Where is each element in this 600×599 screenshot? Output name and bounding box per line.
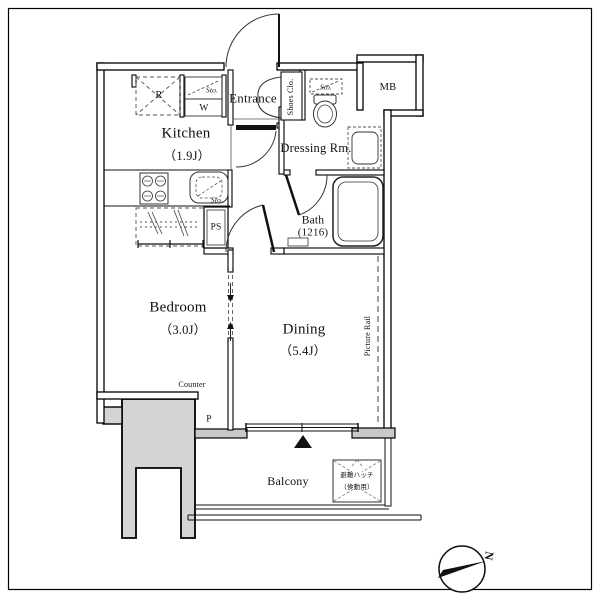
wall-bedroom-bottom [97, 392, 198, 399]
compass-north-label: N [482, 551, 495, 562]
bath-size: (1216) [298, 228, 329, 239]
dining-label: Dining [283, 323, 326, 338]
wall-r-w-divider [180, 75, 184, 117]
balcony-right-edge [385, 438, 391, 506]
kitchen-label: Kitchen [162, 127, 211, 142]
wall-top-left [97, 63, 224, 70]
wall-kitchen-hall [228, 170, 232, 207]
common-area-tab [103, 407, 122, 424]
wall-bedroom-dining-lower [228, 338, 233, 430]
wall-right [384, 110, 391, 430]
floor-plan: Kitchen （1.9J） Entrance Shoes Clo. Dress… [0, 0, 600, 599]
pipe-label: P [206, 415, 211, 425]
sill-left [195, 429, 247, 438]
dressing-room-label: Dressing Rm. [280, 142, 351, 155]
floor-plan-drawing [0, 0, 600, 599]
refrigerator-label: R [155, 91, 162, 102]
bedroom-size: （3.0J） [160, 324, 207, 337]
stove-icon [140, 173, 168, 204]
wall-bath-bottom [284, 248, 384, 254]
shoes-closet-label: Shoes Clo. [287, 79, 295, 116]
counter-label: Counter [178, 381, 205, 389]
washer-label: W [199, 104, 208, 114]
balcony-window-icon [246, 423, 358, 432]
meter-box-label: MB [380, 83, 397, 94]
picture-rail-label: Picture Rail [364, 316, 372, 356]
bathtub-icon [333, 177, 383, 246]
hatch-label-line1: 避難ハッチ [340, 472, 374, 479]
toilet-icon [314, 95, 337, 127]
wall-mb-left [357, 63, 363, 110]
wall-left [97, 63, 104, 423]
pipe-space-label: PS [211, 223, 222, 233]
evacuation-hatch-icon [333, 460, 381, 502]
wall-bath-top [316, 170, 384, 175]
dining-size: （5.4J） [280, 345, 327, 358]
storage-shelf-label: Sto. [206, 86, 218, 94]
compass-icon [438, 546, 486, 592]
hatch-label-line2: （倹動用） [340, 484, 374, 491]
wall-mb-right [416, 55, 423, 116]
wall-mb-top [357, 55, 423, 62]
bath-label: Bath [302, 215, 325, 227]
wall-wbox-right [222, 75, 226, 117]
wall-top-mid [277, 63, 361, 70]
balcony-label: Balcony [267, 475, 308, 487]
wall-rbox-left-stub [132, 75, 136, 87]
storage-toilet-label: Sto. [320, 83, 332, 91]
wall-bath-top-stub [284, 170, 290, 175]
entrance-label: Entrance [229, 92, 277, 105]
bedroom-label: Bedroom [149, 301, 206, 316]
kitchen-size: （1.9J） [164, 150, 211, 163]
storage-sink-label: Sto. [211, 196, 223, 204]
